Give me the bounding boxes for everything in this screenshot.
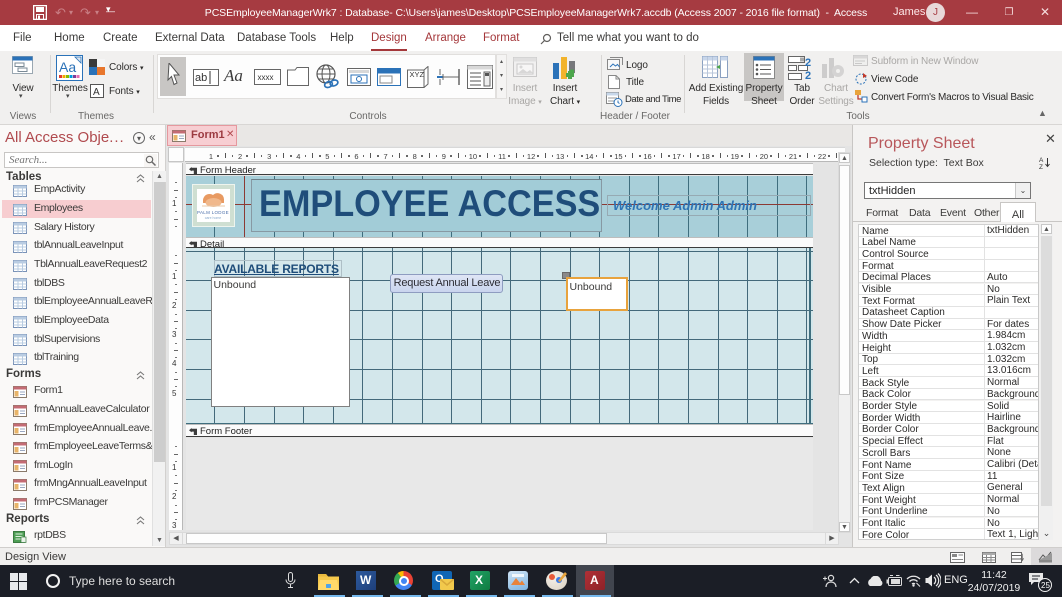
svg-text:Z: Z	[1039, 164, 1043, 169]
svg-text:2: 2	[805, 70, 811, 80]
svg-text:A: A	[1039, 157, 1044, 164]
svg-text:2: 2	[805, 57, 811, 69]
svg-text:A: A	[93, 87, 100, 98]
svg-text:XYZ: XYZ	[410, 70, 425, 79]
svg-text:ab: ab	[195, 72, 207, 84]
svg-text:xxxx: xxxx	[258, 73, 274, 82]
svg-text:Aa: Aa	[59, 59, 76, 75]
